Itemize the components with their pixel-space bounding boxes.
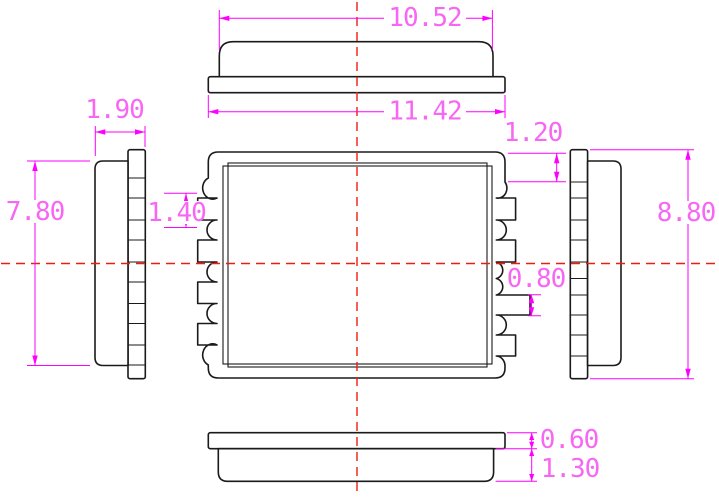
dim-base-width-value: 11.42 bbox=[388, 97, 461, 127]
right-view-castellation-strip bbox=[570, 150, 587, 379]
dim-pad-width-value: 0.80 bbox=[507, 264, 566, 294]
dim-pad-pitch-value: 1.40 bbox=[147, 198, 206, 228]
dim-base-height-value: 8.80 bbox=[657, 198, 716, 228]
technical-drawing: 10.52 11.42 1.90 7.80 8.80 bbox=[0, 0, 719, 498]
dim-cover-width-value: 10.52 bbox=[388, 3, 461, 33]
plan-view bbox=[198, 152, 530, 378]
dim-pad-pitch: 1.40 bbox=[147, 193, 206, 228]
dim-cover-thickness: 1.30 bbox=[496, 449, 600, 484]
dim-body-height-value: 7.80 bbox=[6, 197, 65, 227]
dim-base-plate-thickness: 0.60 bbox=[496, 425, 599, 455]
dim-base-plate-thickness-value: 0.60 bbox=[540, 425, 599, 455]
right-side-view bbox=[570, 150, 621, 379]
technical-drawing-canvas: 10.52 11.42 1.90 7.80 8.80 bbox=[0, 0, 719, 498]
dim-cover-thickness-value: 1.30 bbox=[541, 454, 600, 484]
dim-pad-top-offset-value: 1.20 bbox=[504, 118, 563, 148]
plan-view-outline-with-castellations bbox=[198, 152, 530, 378]
left-view-castellation-strip bbox=[128, 150, 145, 379]
dim-side-thickness: 1.90 bbox=[85, 95, 145, 156]
top-view-cover bbox=[219, 42, 493, 77]
bottom-view-body bbox=[218, 449, 493, 482]
left-side-view bbox=[95, 150, 145, 379]
dim-pad-top-offset: 1.20 bbox=[504, 118, 566, 182]
dim-side-thickness-value: 1.90 bbox=[85, 95, 144, 125]
